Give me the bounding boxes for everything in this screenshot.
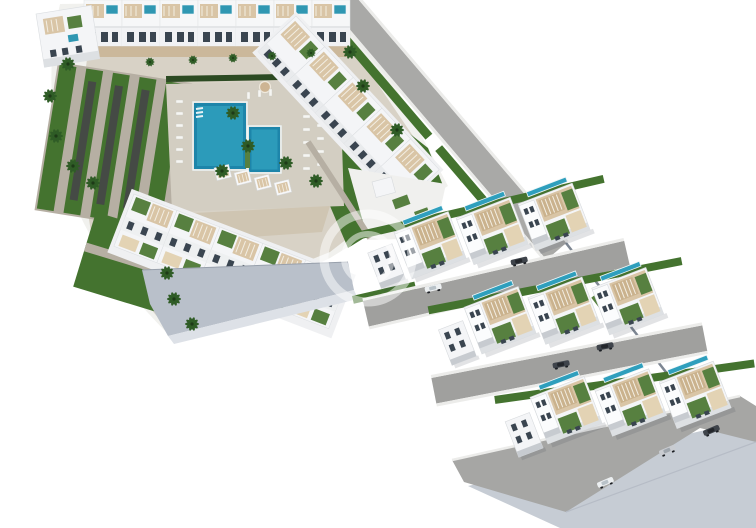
rect-shape: [276, 4, 294, 18]
rect-shape: [200, 4, 218, 18]
window: [76, 45, 83, 53]
circle-shape: [54, 134, 57, 137]
rect-shape: [303, 167, 310, 170]
sun-lounger: [303, 167, 310, 170]
pool-steps: [196, 116, 203, 117]
rect-shape: [317, 137, 324, 140]
window: [62, 47, 69, 55]
pool-steps: [196, 108, 203, 109]
rect-shape: [122, 26, 160, 28]
corner-terrace: [43, 16, 65, 35]
render-canvas: [0, 0, 756, 528]
second-pool-water: [252, 130, 278, 170]
corner-roof-garden: [67, 15, 83, 29]
rect-shape: [238, 4, 256, 18]
rect-shape: [258, 90, 261, 97]
sun-lounger: [176, 100, 183, 103]
sun-lounger: [247, 92, 250, 99]
apartment-north-unit: [160, 0, 198, 46]
circle-shape: [149, 61, 151, 63]
sun-lounger: [317, 137, 324, 140]
rect-shape: [296, 5, 308, 14]
rect-shape: [188, 32, 194, 42]
rect-shape: [144, 5, 156, 14]
sun-lounger: [176, 124, 183, 127]
rect-shape: [334, 5, 346, 14]
rect-shape: [241, 32, 248, 42]
sun-lounger: [176, 148, 183, 151]
rect-shape: [176, 124, 183, 127]
rect-shape: [269, 89, 272, 96]
circle-shape: [232, 57, 234, 59]
rect-shape: [247, 92, 250, 99]
sun-lounger: [258, 90, 261, 97]
circle-shape: [172, 297, 175, 300]
sun-lounger: [303, 128, 310, 131]
rect-shape: [220, 5, 232, 14]
apartment-north-unit: [198, 0, 236, 46]
sun-lounger: [303, 115, 310, 118]
sun-lounger: [176, 112, 183, 115]
rect-shape: [198, 26, 236, 28]
rect-shape: [303, 154, 310, 157]
rect-shape: [127, 32, 134, 42]
rect-shape: [303, 115, 310, 118]
circle-shape: [314, 179, 317, 182]
circle-shape: [271, 55, 273, 57]
circle-shape: [91, 181, 94, 184]
rect-shape: [312, 26, 350, 28]
rect-shape: [215, 32, 222, 42]
rect-shape: [165, 32, 172, 42]
rect-shape: [176, 148, 183, 151]
rect-shape: [236, 26, 274, 28]
rect-shape: [176, 100, 183, 103]
rect-shape: [150, 32, 156, 42]
circle-shape: [361, 84, 364, 87]
rect-shape: [162, 4, 180, 18]
rect-shape: [139, 32, 146, 42]
rect-shape: [106, 5, 118, 14]
sun-lounger: [269, 89, 272, 96]
rect-shape: [112, 32, 118, 42]
sun-lounger: [176, 136, 183, 139]
circle-shape: [284, 161, 287, 164]
apartment-north-unit: [122, 0, 160, 46]
circle-shape: [231, 111, 234, 114]
rect-shape: [160, 26, 198, 28]
circle-shape: [348, 50, 351, 53]
rect-shape: [101, 32, 108, 42]
sun-lounger: [176, 160, 183, 163]
rect-shape: [329, 32, 336, 42]
sun-lounger: [303, 154, 310, 157]
rect-shape: [176, 160, 183, 163]
circle-shape: [246, 144, 249, 147]
circle-shape: [165, 271, 168, 274]
circle-shape: [192, 59, 194, 61]
rect-shape: [303, 128, 310, 131]
rect-shape: [226, 32, 232, 42]
rect-shape: [258, 5, 270, 14]
rect-shape: [203, 32, 210, 42]
rect-shape: [253, 32, 260, 42]
rect-shape: [177, 32, 184, 42]
pool-steps: [196, 112, 203, 113]
circle-shape: [71, 164, 74, 167]
circle-shape: [220, 169, 223, 172]
rect-shape: [340, 32, 346, 42]
circle-shape: [395, 128, 398, 131]
rect-shape: [314, 4, 332, 18]
circle-shape: [48, 94, 51, 97]
rect-shape: [176, 112, 183, 115]
circle-shape: [66, 62, 69, 65]
circle-shape: [310, 52, 312, 54]
rect-shape: [176, 136, 183, 139]
aerial-render: [0, 0, 756, 528]
circle-shape: [190, 322, 193, 325]
window: [50, 49, 57, 57]
pool-island: [245, 150, 250, 168]
rect-shape: [182, 5, 194, 14]
rect-shape: [124, 4, 142, 18]
